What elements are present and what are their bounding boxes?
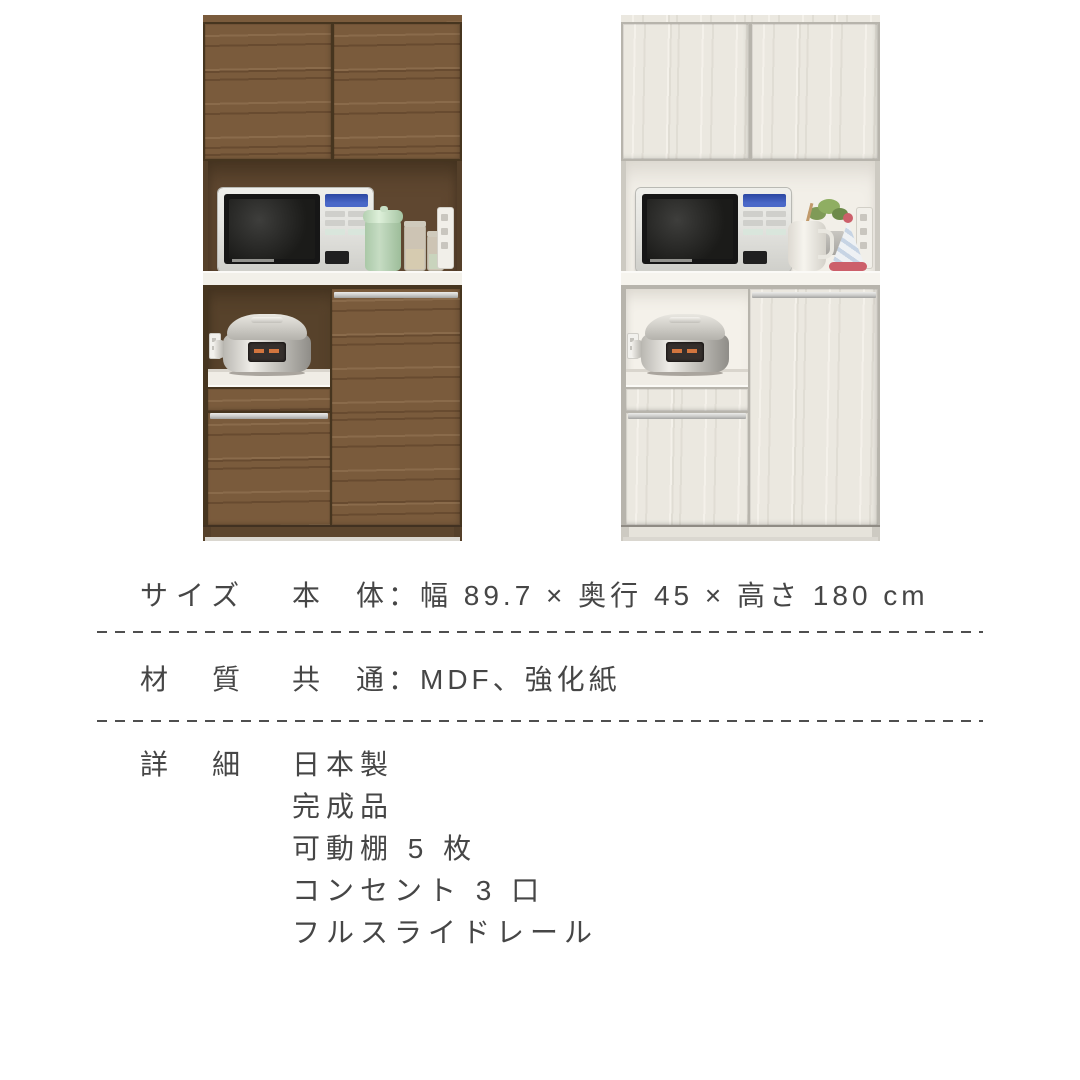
- spec-value-size: 本 体：幅 89.7 × 奥行 45 × 高さ 180 cm: [292, 578, 929, 614]
- spec-label-material: 材 質: [140, 662, 292, 698]
- spec-label-size: サイズ: [140, 578, 292, 614]
- cone-body: [831, 222, 865, 266]
- spec-row-material: 材 質 共 通：MDF、強化紙: [0, 662, 621, 698]
- product-spec-image: サイズ 本 体：幅 89.7 × 奥行 45 × 高さ 180 cm 材 質 共…: [0, 0, 1080, 1080]
- spec-label-detail: 詳 細: [140, 744, 292, 954]
- detail-item: 日本製: [292, 744, 598, 786]
- dashed-divider: [97, 720, 983, 722]
- cone-top: [843, 213, 853, 223]
- dashed-divider: [97, 631, 983, 633]
- cone-ornament: [829, 217, 867, 271]
- detail-list: 日本製 完成品 可動棚 5 枚 コンセント 3 口 フルスライドレール: [292, 744, 598, 954]
- detail-item: 完成品: [292, 786, 598, 828]
- detail-item: フルスライドレール: [292, 912, 598, 954]
- cone-base: [829, 262, 867, 271]
- detail-item: 可動棚 5 枚: [292, 828, 598, 870]
- spec-row-detail: 詳 細 日本製 完成品 可動棚 5 枚 コンセント 3 口 フルスライドレール: [0, 744, 598, 954]
- spec-table: サイズ 本 体：幅 89.7 × 奥行 45 × 高さ 180 cm 材 質 共…: [0, 0, 1080, 1080]
- spec-row-size: サイズ 本 体：幅 89.7 × 奥行 45 × 高さ 180 cm: [0, 578, 929, 614]
- detail-item: コンセント 3 口: [292, 870, 598, 912]
- white-pitcher: [788, 215, 832, 271]
- spec-value-material: 共 通：MDF、強化紙: [292, 662, 621, 698]
